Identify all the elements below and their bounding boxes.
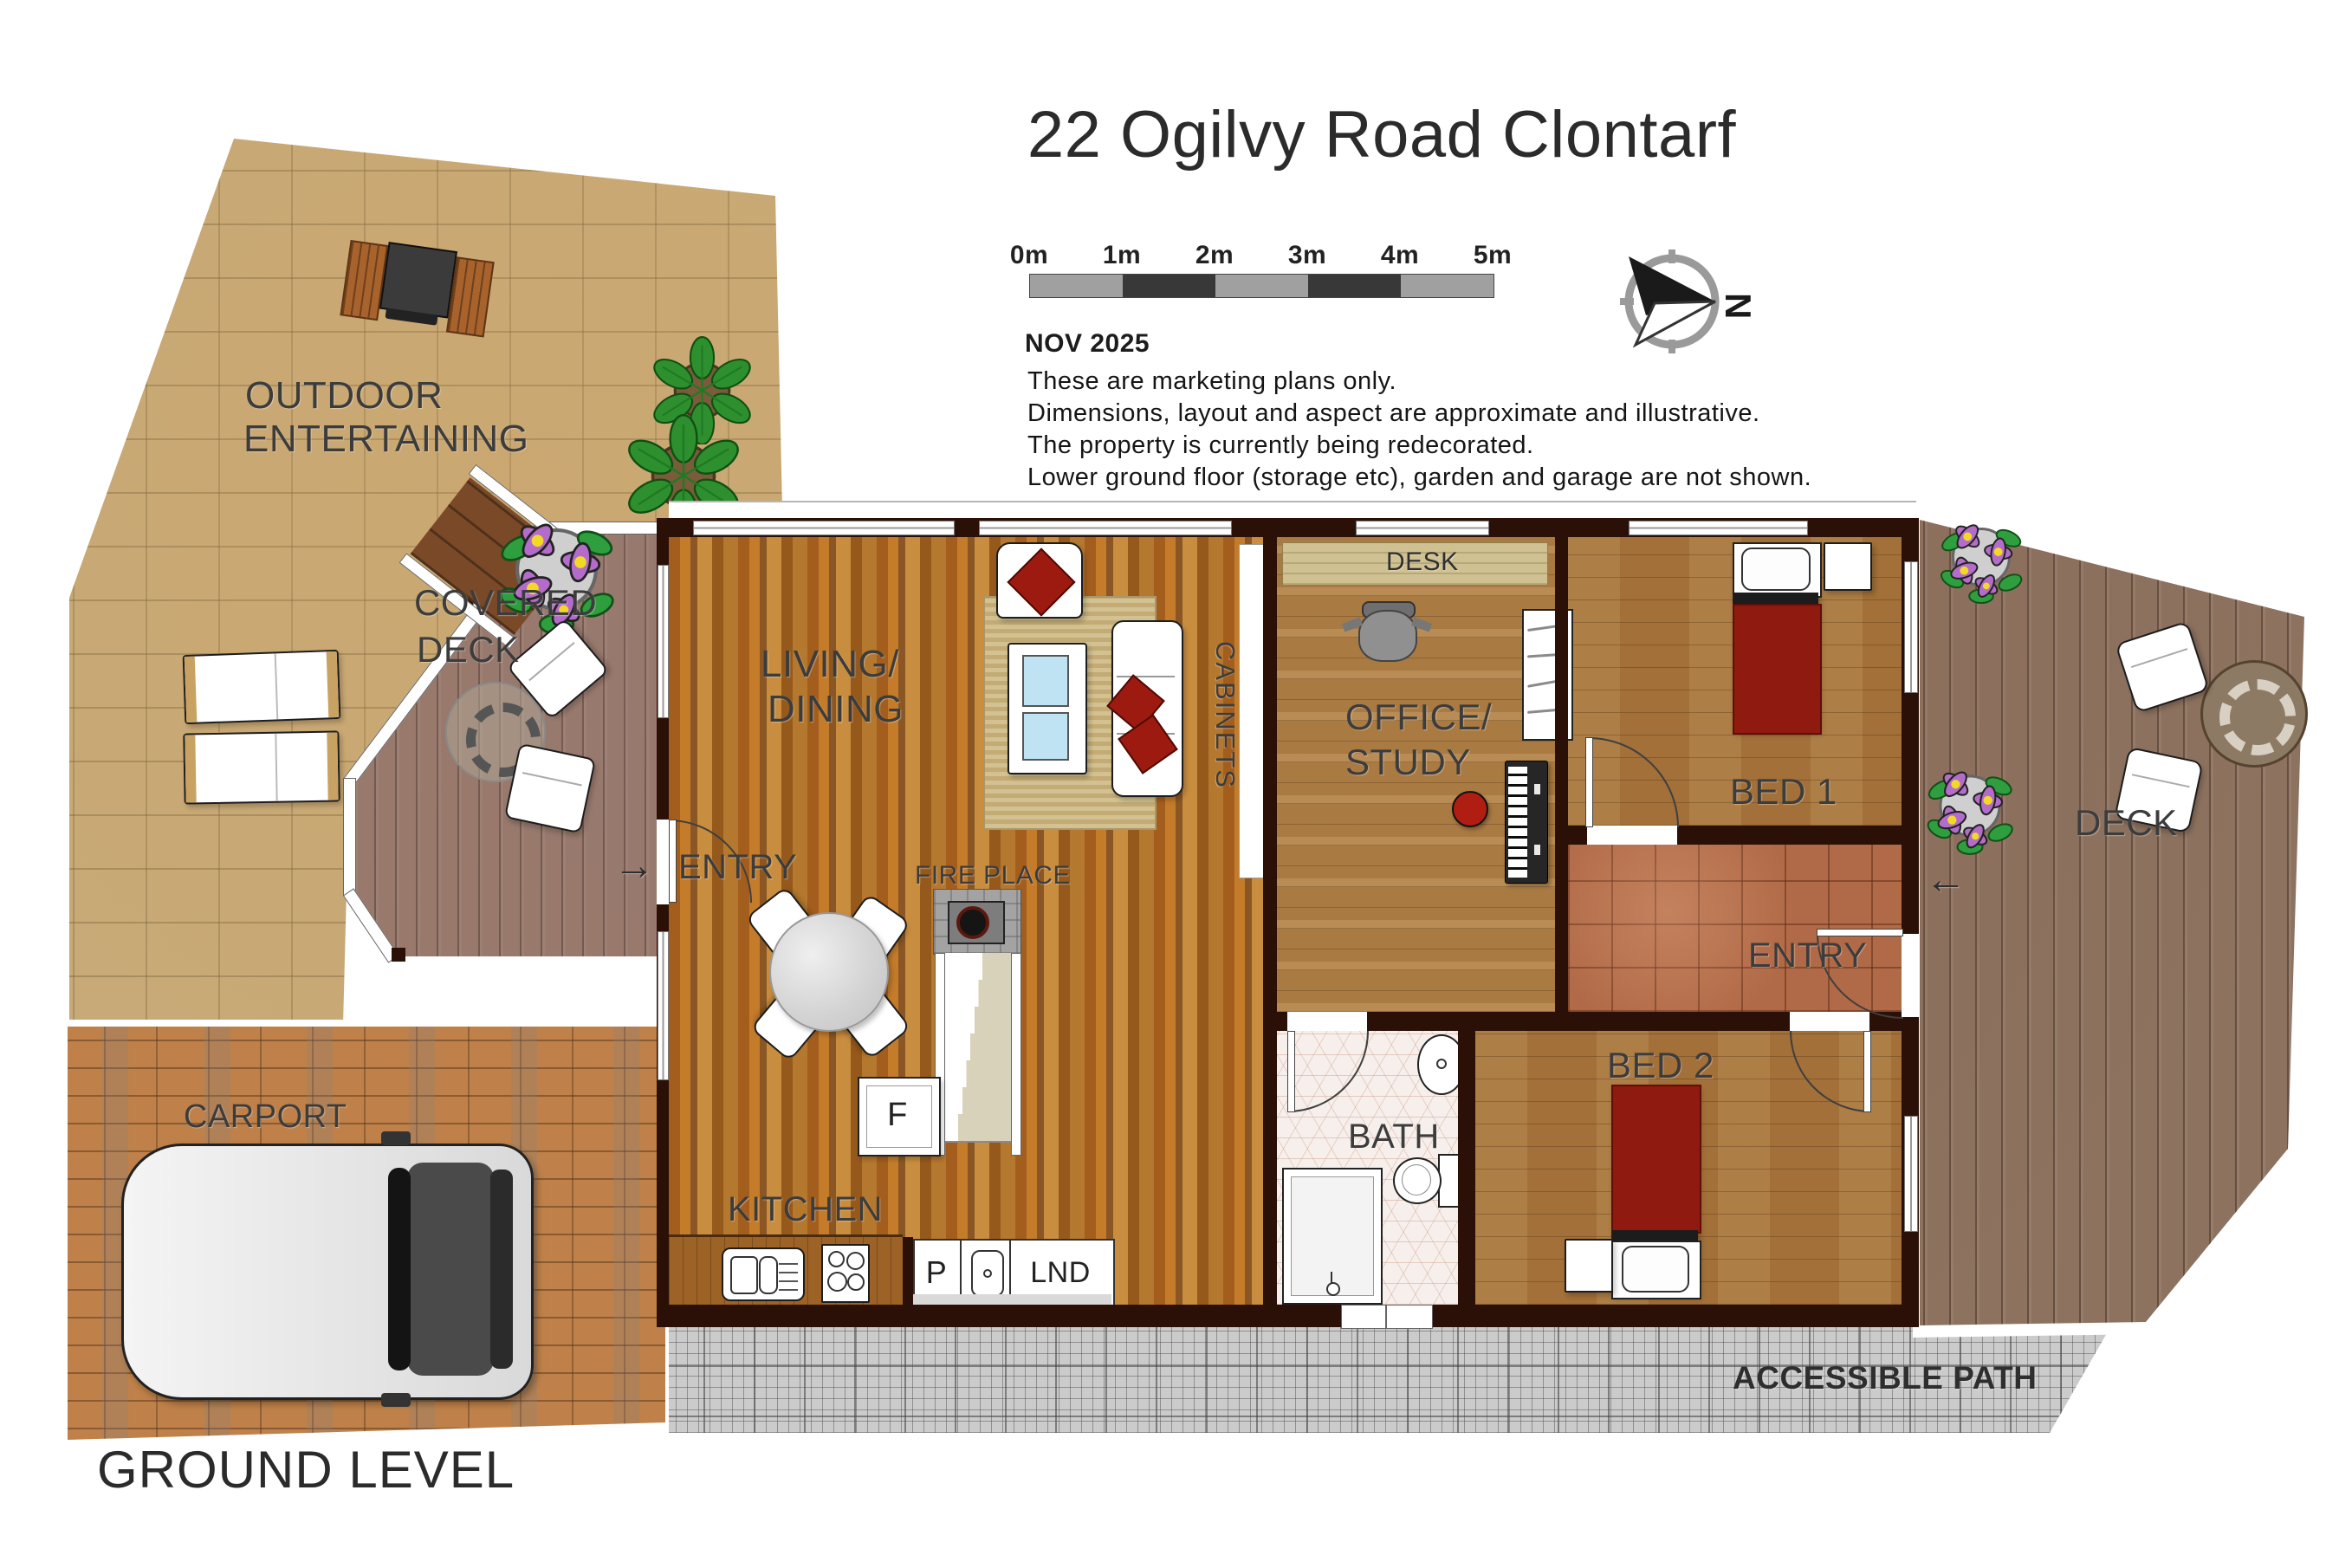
scale-label-1m: 1m <box>1103 241 1141 270</box>
disclaimer-line-3: The property is currently being redecora… <box>1027 431 1534 460</box>
piano-keys <box>1508 767 1527 878</box>
compass-icon: N <box>1608 236 1755 374</box>
door-leaf <box>669 820 677 903</box>
toilet <box>1391 1152 1459 1208</box>
double-door <box>1341 1305 1433 1329</box>
bed2-pillow <box>1622 1246 1689 1293</box>
bed2-label: BED 2 <box>1607 1045 1714 1086</box>
car-mirror <box>381 1131 411 1145</box>
door-leaf <box>1863 1031 1871 1112</box>
bed1-headrail <box>1733 593 1818 604</box>
door-leaf <box>1287 1031 1295 1112</box>
bbq-body <box>379 242 457 318</box>
living-dining-label-line1: LIVING/ <box>761 643 899 686</box>
bed1 <box>1733 542 1818 731</box>
stair-step <box>943 1114 1011 1143</box>
scale-label-4m: 4m <box>1381 241 1419 270</box>
covered-deck-label-line1: COVERED <box>414 582 597 624</box>
door-opening <box>1287 1012 1367 1031</box>
office-study-label-line1: OFFICE/ <box>1345 697 1492 738</box>
scale-segment <box>1308 275 1401 297</box>
outdoor-entertaining-label-line1: OUTDOOR <box>245 374 443 418</box>
door-opening <box>1790 1012 1869 1031</box>
stair-step <box>943 1007 1011 1035</box>
burner <box>847 1273 865 1291</box>
deck-post <box>392 948 405 962</box>
plan-date: NOV 2025 <box>1025 329 1150 359</box>
fireplace <box>933 889 1021 955</box>
car <box>121 1144 528 1395</box>
deck-stool <box>504 743 596 834</box>
entry-right-label: ENTRY <box>1748 936 1867 975</box>
coffee-table-glass <box>1022 712 1069 761</box>
bed2-side-table <box>1565 1239 1613 1293</box>
desk-label: DESK <box>1386 548 1459 577</box>
lounger-fold-line <box>275 653 279 719</box>
outdoor-entertaining-label-line2: ENTERTAINING <box>243 418 529 461</box>
fridge-label: F <box>887 1097 908 1134</box>
stair-step <box>943 980 1011 1008</box>
kitchen-sink <box>722 1247 805 1301</box>
piano-control <box>1534 845 1540 855</box>
deck-round-table-ring <box>2219 679 2296 755</box>
lounger-end <box>185 735 196 802</box>
car-windshield <box>388 1168 411 1370</box>
counter-shadow <box>913 1294 1111 1305</box>
sink-drainer <box>779 1256 798 1291</box>
bathtub-inner <box>1291 1176 1374 1296</box>
right-deck-label: DECK <box>2075 802 2178 844</box>
sun-lounger <box>183 730 340 804</box>
wall-living-office <box>1263 537 1277 1305</box>
ground-level-label: GROUND LEVEL <box>97 1440 515 1500</box>
pantry-label: P <box>926 1254 948 1291</box>
accessible-path-label: ACCESSIBLE PATH <box>1733 1360 2037 1396</box>
burner <box>828 1251 845 1267</box>
chair-line <box>2131 648 2187 668</box>
page-title: 22 Ogilvy Road Clontarf <box>1027 97 1736 172</box>
fireplace-flue <box>956 906 989 939</box>
scale-label-2m: 2m <box>1195 241 1234 270</box>
piano-control <box>1534 784 1540 794</box>
disclaimer-line-1: These are marketing plans only. <box>1027 367 1396 396</box>
carport-label: CARPORT <box>184 1098 347 1136</box>
window <box>693 521 955 535</box>
flower-pot-icon <box>1916 750 2024 858</box>
lounger-end <box>327 732 338 800</box>
scale-label-3m: 3m <box>1288 241 1326 270</box>
door-leaf <box>1817 929 1903 936</box>
door-opening <box>1587 826 1677 845</box>
bathtub <box>1282 1168 1383 1305</box>
car-rear <box>490 1170 513 1369</box>
window <box>979 521 1232 535</box>
stool-line <box>528 642 574 681</box>
scale-segment <box>1401 275 1493 297</box>
sink-basin <box>730 1256 758 1294</box>
fire-place-label: FIRE PLACE <box>915 861 1071 891</box>
stair-step <box>943 1033 1011 1062</box>
wall-bath-bed2 <box>1458 1031 1475 1305</box>
bed2-headrail <box>1611 1230 1698 1241</box>
cabinets-unit <box>1239 544 1265 878</box>
lounger-end <box>327 651 340 717</box>
door-leaf <box>1585 737 1593 827</box>
scale-segment <box>1030 275 1123 297</box>
office-chair-seat <box>1358 610 1417 662</box>
window <box>1904 1116 1918 1232</box>
window <box>658 931 669 1080</box>
covered-deck-label-line2: DECK <box>417 629 520 671</box>
office-chair <box>1358 601 1416 662</box>
svg-text:N: N <box>1718 293 1755 319</box>
bed1-side-table <box>1824 542 1872 591</box>
dining-table <box>769 912 889 1032</box>
stair-step <box>943 1060 1011 1089</box>
office-study-label-line2: STUDY <box>1345 742 1471 783</box>
disclaimer-line-2: Dimensions, layout and aspect are approx… <box>1027 399 1760 428</box>
sun-lounger <box>183 650 341 724</box>
scale-segment <box>1215 275 1308 297</box>
cabinets-label: CABINETS <box>1209 641 1241 789</box>
piano-stool <box>1452 791 1488 827</box>
floor-plan-page: 22 Ogilvy Road Clontarf 0m 1m 2m 3m 4m 5… <box>0 0 2352 1568</box>
bed2-cover <box>1611 1085 1701 1234</box>
bed2 <box>1611 1085 1698 1296</box>
window <box>1356 521 1489 535</box>
disclaimer-line-4: Lower ground floor (storage etc), garden… <box>1027 463 1811 492</box>
laundry-label: LND <box>1030 1256 1091 1290</box>
stool-line <box>522 772 582 787</box>
kitchen-label: KITCHEN <box>728 1190 883 1229</box>
window <box>1629 521 1808 535</box>
burner <box>846 1252 865 1270</box>
bed1-pillow <box>1741 548 1811 591</box>
stair-rail <box>1011 953 1021 1156</box>
bath-sink-drain <box>1436 1059 1447 1069</box>
stair-step <box>943 953 1011 982</box>
piano <box>1505 761 1548 884</box>
double-door-divider <box>1385 1306 1387 1328</box>
entry-right-arrow-icon: ← <box>1925 856 1967 904</box>
sink-basin <box>759 1256 778 1294</box>
entry-left-arrow-icon: → <box>613 842 656 890</box>
car-cabin <box>407 1163 494 1376</box>
bath-label: BATH <box>1348 1118 1440 1157</box>
lounger-end <box>185 657 198 722</box>
living-dining-label-line2: DINING <box>768 688 904 731</box>
burner <box>827 1272 847 1292</box>
cooktop <box>821 1244 870 1303</box>
door-opening <box>1902 934 1919 1017</box>
scale-segment <box>1123 275 1215 297</box>
flower-pot-icon <box>1930 504 2032 606</box>
chair-line <box>2132 774 2190 787</box>
bath-faucet-icon <box>1326 1282 1340 1296</box>
toilet-seat <box>1402 1164 1431 1195</box>
window <box>1904 561 1918 693</box>
deck-railing <box>343 778 356 896</box>
lounger-fold-line <box>275 734 277 801</box>
scale-label-0m: 0m <box>1010 241 1048 270</box>
laundry-sink-drain <box>983 1269 992 1278</box>
bed1-cover <box>1733 604 1822 735</box>
wall-bottom <box>657 1305 1919 1327</box>
car-mirror <box>381 1393 411 1407</box>
kitchen-divider-wall <box>903 1237 913 1305</box>
scale-label-5m: 5m <box>1474 241 1512 270</box>
staircase <box>935 953 1020 1154</box>
window <box>658 565 669 718</box>
sofa-seam <box>1117 676 1175 677</box>
coffee-table-glass <box>1022 655 1069 707</box>
house-top-walkway <box>669 501 1916 520</box>
door-opening <box>657 820 669 904</box>
scale-bar <box>1029 274 1494 298</box>
entry-left-label: ENTRY <box>678 848 797 887</box>
stair-step <box>943 1087 1011 1116</box>
wall-office-bed1 <box>1555 537 1568 1014</box>
coffee-table <box>1008 643 1087 774</box>
bed1-label: BED 1 <box>1730 771 1837 813</box>
